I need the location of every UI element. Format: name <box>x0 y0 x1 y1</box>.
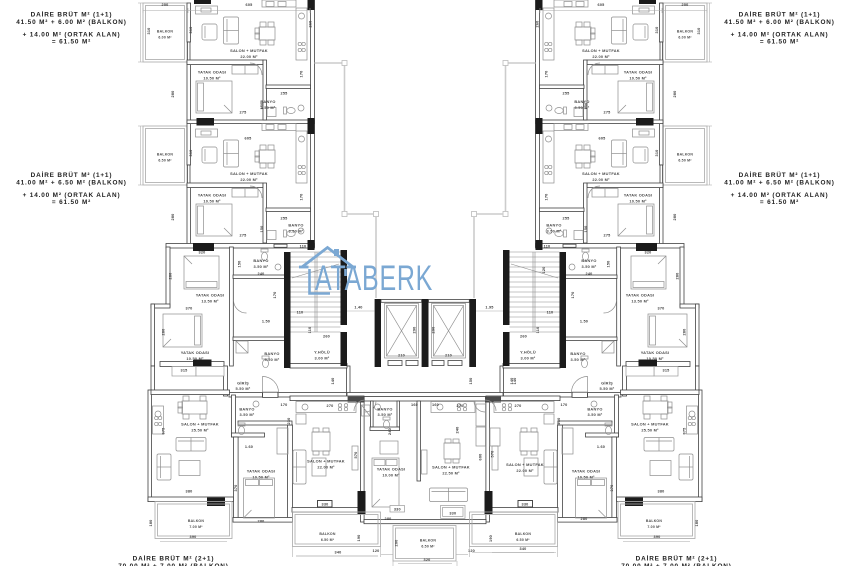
svg-text:230: 230 <box>557 418 561 425</box>
svg-text:5.50 M²: 5.50 M² <box>600 386 615 391</box>
svg-text:170: 170 <box>273 292 277 299</box>
svg-text:240: 240 <box>388 428 392 435</box>
svg-text:= 61.50 M²: = 61.50 M² <box>760 199 799 206</box>
svg-text:340: 340 <box>520 547 527 551</box>
svg-text:240: 240 <box>456 427 460 434</box>
svg-text:SALON + MUTFAK: SALON + MUTFAK <box>230 48 268 53</box>
svg-text:BANYO: BANYO <box>239 407 254 412</box>
svg-text:200: 200 <box>162 3 169 7</box>
svg-text:3.50 M²: 3.50 M² <box>571 357 586 362</box>
svg-text:SALON + MUTFAK: SALON + MUTFAK <box>582 171 620 176</box>
svg-text:DAİRE BRÜT M² (2+1): DAİRE BRÜT M² (2+1) <box>133 554 215 563</box>
svg-text:3.50 M²: 3.50 M² <box>588 412 603 417</box>
svg-text:7.00 M²: 7.00 M² <box>647 525 661 529</box>
svg-text:DAİRE BRÜT M² (2+1): DAİRE BRÜT M² (2+1) <box>636 554 718 563</box>
svg-text:340: 340 <box>335 551 342 555</box>
svg-text:25.50 M²: 25.50 M² <box>191 428 209 433</box>
svg-text:310: 310 <box>655 150 659 157</box>
svg-text:10.50 M²: 10.50 M² <box>577 475 595 480</box>
svg-text:BANYO: BANYO <box>264 351 279 356</box>
svg-text:120: 120 <box>373 549 380 553</box>
svg-text:110: 110 <box>308 327 312 334</box>
svg-text:3.50 M²: 3.50 M² <box>254 264 269 269</box>
svg-text:315: 315 <box>181 369 188 373</box>
svg-text:150: 150 <box>584 103 588 110</box>
svg-text:110: 110 <box>544 245 551 249</box>
svg-text:310: 310 <box>147 28 151 35</box>
svg-text:3.50 M²: 3.50 M² <box>582 264 597 269</box>
svg-text:DAİRE BRÜT M² (1+1): DAİRE BRÜT M² (1+1) <box>739 170 821 179</box>
svg-text:170: 170 <box>571 292 575 299</box>
svg-text:275: 275 <box>240 234 247 238</box>
svg-text:280: 280 <box>673 91 677 98</box>
svg-text:6.50 M²: 6.50 M² <box>321 538 335 542</box>
svg-text:370: 370 <box>234 485 238 492</box>
svg-text:BALKON: BALKON <box>188 519 204 523</box>
svg-text:200: 200 <box>395 540 399 547</box>
svg-text:1.60: 1.60 <box>597 445 605 449</box>
svg-text:160: 160 <box>432 403 439 407</box>
svg-text:SALON + MUTFAK: SALON + MUTFAK <box>506 462 544 467</box>
svg-text:10.00 M²: 10.00 M² <box>382 473 400 478</box>
svg-text:10.50 M²: 10.50 M² <box>203 76 221 81</box>
svg-text:10.50 M²: 10.50 M² <box>646 356 664 361</box>
svg-text:DAİRE BRÜT M² (1+1): DAİRE BRÜT M² (1+1) <box>739 10 821 19</box>
svg-text:BANYO: BANYO <box>377 407 392 412</box>
svg-text:SALON + MUTFAK: SALON + MUTFAK <box>432 465 470 470</box>
svg-text:22.00 M²: 22.00 M² <box>592 54 610 59</box>
svg-text:3.00 M²: 3.00 M² <box>521 356 536 361</box>
svg-text:280: 280 <box>673 214 677 221</box>
svg-text:875: 875 <box>683 428 687 435</box>
svg-text:DAİRE BRÜT M² (1+1): DAİRE BRÜT M² (1+1) <box>31 170 113 179</box>
svg-text:320: 320 <box>199 251 206 255</box>
svg-text:275: 275 <box>604 234 611 238</box>
svg-text:110: 110 <box>300 245 307 249</box>
svg-text:150: 150 <box>260 226 264 233</box>
svg-text:SALON + MUTFAK: SALON + MUTFAK <box>582 48 620 53</box>
svg-text:380: 380 <box>658 490 665 494</box>
svg-text:+ 14.00 M² (ORTAK ALAN): + 14.00 M² (ORTAK ALAN) <box>731 192 829 199</box>
svg-text:3.00 M²: 3.00 M² <box>315 356 330 361</box>
svg-text:3.50 M²: 3.50 M² <box>240 412 255 417</box>
svg-text:BALKON: BALKON <box>420 539 436 543</box>
svg-text:275: 275 <box>604 111 611 115</box>
svg-text:605: 605 <box>246 3 253 7</box>
svg-text:240: 240 <box>586 272 593 276</box>
svg-text:22.00 M²: 22.00 M² <box>516 468 534 473</box>
svg-text:YATAK ODASI: YATAK ODASI <box>247 469 276 474</box>
svg-text:BANYO: BANYO <box>546 223 561 228</box>
svg-text:570: 570 <box>491 451 495 458</box>
svg-text:390: 390 <box>654 535 661 539</box>
svg-text:160: 160 <box>411 403 418 407</box>
svg-text:BANYO: BANYO <box>253 258 268 263</box>
svg-text:310: 310 <box>697 28 701 35</box>
svg-text:330: 330 <box>522 503 529 507</box>
svg-text:290: 290 <box>432 327 436 334</box>
svg-text:150: 150 <box>238 261 242 268</box>
svg-text:190: 190 <box>357 535 361 542</box>
svg-text:280: 280 <box>171 91 175 98</box>
svg-text:ATABERK: ATABERK <box>315 259 433 298</box>
svg-text:BALKON: BALKON <box>677 153 693 157</box>
svg-text:41.50 M² + 6.00 M² (BALKON): 41.50 M² + 6.00 M² (BALKON) <box>724 19 834 26</box>
svg-text:+ 14.00 M² (ORTAK ALAN): + 14.00 M² (ORTAK ALAN) <box>23 32 121 39</box>
svg-text:280: 280 <box>581 517 588 521</box>
svg-text:110: 110 <box>297 311 304 315</box>
svg-text:570: 570 <box>354 452 358 459</box>
svg-text:315: 315 <box>663 369 670 373</box>
svg-text:120: 120 <box>542 267 546 274</box>
svg-text:320: 320 <box>645 251 652 255</box>
svg-text:41.50 M² + 6.00 M² (BALKON): 41.50 M² + 6.00 M² (BALKON) <box>16 19 126 26</box>
svg-text:BANYO: BANYO <box>570 351 585 356</box>
svg-text:22.00 M²: 22.00 M² <box>240 54 258 59</box>
svg-text:13.50 M²: 13.50 M² <box>201 299 219 304</box>
svg-text:SALON + MUTFAK: SALON + MUTFAK <box>230 171 268 176</box>
svg-text:DAİRE BRÜT M² (1+1): DAİRE BRÜT M² (1+1) <box>31 10 113 19</box>
svg-text:370: 370 <box>610 485 614 492</box>
svg-text:Y.HÖLÜ: Y.HÖLÜ <box>520 350 536 355</box>
svg-text:280: 280 <box>258 519 265 523</box>
svg-text:10.50 M²: 10.50 M² <box>203 199 221 204</box>
svg-text:1.95: 1.95 <box>485 306 493 310</box>
svg-text:10.50 M²: 10.50 M² <box>629 199 647 204</box>
svg-text:1.50: 1.50 <box>262 320 270 324</box>
svg-text:280: 280 <box>162 329 166 336</box>
svg-text:41.00 M² + 6.50 M² (BALKON): 41.00 M² + 6.50 M² (BALKON) <box>724 180 834 187</box>
svg-text:605: 605 <box>598 3 605 7</box>
svg-text:270: 270 <box>515 404 522 408</box>
svg-text:6.50 M²: 6.50 M² <box>516 538 530 542</box>
svg-text:SALON + MUTFAK: SALON + MUTFAK <box>181 422 219 427</box>
svg-text:YATAK ODASI: YATAK ODASI <box>377 467 406 472</box>
svg-text:GİRİŞ: GİRİŞ <box>237 381 249 386</box>
svg-text:BALKON: BALKON <box>646 519 662 523</box>
svg-text:3.50 M²: 3.50 M² <box>289 229 304 234</box>
svg-text:190: 190 <box>489 535 493 542</box>
svg-text:170: 170 <box>281 403 288 407</box>
svg-text:150: 150 <box>607 261 611 268</box>
svg-text:270: 270 <box>327 404 334 408</box>
svg-text:6.00 M²: 6.00 M² <box>678 36 692 40</box>
svg-text:YATAK ODASI: YATAK ODASI <box>181 350 210 355</box>
svg-text:330: 330 <box>449 511 456 515</box>
svg-text:605: 605 <box>599 137 606 141</box>
svg-text:875: 875 <box>162 428 166 435</box>
svg-text:170: 170 <box>544 194 548 201</box>
svg-text:150: 150 <box>584 226 588 233</box>
svg-text:41.00 M² + 6.50 M² (BALKON): 41.00 M² + 6.50 M² (BALKON) <box>16 180 126 187</box>
svg-text:= 61.50 M²: = 61.50 M² <box>52 39 91 46</box>
svg-text:10.50 M²: 10.50 M² <box>252 475 270 480</box>
svg-text:1.40: 1.40 <box>354 306 362 310</box>
svg-text:180: 180 <box>695 520 699 527</box>
svg-text:240: 240 <box>258 272 265 276</box>
svg-text:3.50 M²: 3.50 M² <box>547 229 562 234</box>
svg-text:260: 260 <box>520 335 527 339</box>
svg-text:10.50 M²: 10.50 M² <box>186 356 204 361</box>
svg-text:255: 255 <box>281 92 288 96</box>
svg-text:+ 14.00 M² (ORTAK ALAN): + 14.00 M² (ORTAK ALAN) <box>23 192 121 199</box>
svg-text:6.50 M²: 6.50 M² <box>421 545 435 549</box>
svg-text:290: 290 <box>413 327 417 334</box>
svg-text:= 61.50 M²: = 61.50 M² <box>52 199 91 206</box>
svg-text:260: 260 <box>309 21 313 28</box>
svg-text:7.00 M²: 7.00 M² <box>189 525 203 529</box>
svg-text:600: 600 <box>479 454 483 461</box>
svg-text:330: 330 <box>394 508 401 512</box>
svg-text:605: 605 <box>245 137 252 141</box>
svg-text:25.50 M²: 25.50 M² <box>641 428 659 433</box>
svg-text:+ 14.00 M² (ORTAK ALAN): + 14.00 M² (ORTAK ALAN) <box>731 32 829 39</box>
svg-text:390: 390 <box>190 535 197 539</box>
svg-text:BALKON: BALKON <box>319 532 335 536</box>
svg-text:13.50 M²: 13.50 M² <box>631 299 649 304</box>
svg-text:255: 255 <box>281 217 288 221</box>
svg-text:YATAK ODASI: YATAK ODASI <box>641 350 670 355</box>
svg-text:SALON + MUTFAK: SALON + MUTFAK <box>307 459 345 464</box>
svg-text:260: 260 <box>323 335 330 339</box>
svg-text:370: 370 <box>186 307 193 311</box>
svg-text:YATAK ODASI: YATAK ODASI <box>624 193 653 198</box>
svg-text:BANYO: BANYO <box>581 258 596 263</box>
svg-text:150: 150 <box>260 103 264 110</box>
svg-text:310: 310 <box>189 27 193 34</box>
svg-text:22.50 M²: 22.50 M² <box>442 471 460 476</box>
svg-text:210: 210 <box>398 354 405 358</box>
svg-text:310: 310 <box>189 150 193 157</box>
svg-text:170: 170 <box>300 194 304 201</box>
svg-text:BALKON: BALKON <box>157 153 173 157</box>
svg-text:170: 170 <box>544 71 548 78</box>
svg-text:330: 330 <box>322 503 329 507</box>
svg-text:170: 170 <box>300 71 304 78</box>
svg-text:6.50 M²: 6.50 M² <box>158 159 172 163</box>
svg-text:3.50 M²: 3.50 M² <box>378 412 393 417</box>
svg-text:YATAK ODASI: YATAK ODASI <box>624 70 653 75</box>
svg-text:320: 320 <box>424 558 431 562</box>
svg-text:BANYO: BANYO <box>587 407 602 412</box>
svg-text:YATAK ODASI: YATAK ODASI <box>198 70 227 75</box>
svg-text:22.00 M²: 22.00 M² <box>240 177 258 182</box>
svg-text:YATAK ODASI: YATAK ODASI <box>626 293 655 298</box>
svg-text:200: 200 <box>682 3 689 7</box>
svg-text:GİRİŞ: GİRİŞ <box>601 381 613 386</box>
svg-text:280: 280 <box>385 517 392 521</box>
svg-text:140: 140 <box>510 378 514 385</box>
svg-text:5.50 M²: 5.50 M² <box>236 386 251 391</box>
svg-text:= 61.50 M²: = 61.50 M² <box>760 39 799 46</box>
svg-text:SALON + MUTFAK: SALON + MUTFAK <box>631 422 669 427</box>
svg-text:BALKON: BALKON <box>677 30 693 34</box>
svg-text:170: 170 <box>561 403 568 407</box>
svg-text:280: 280 <box>169 273 173 280</box>
svg-text:280: 280 <box>171 214 175 221</box>
svg-text:260: 260 <box>536 21 540 28</box>
svg-text:BALKON: BALKON <box>515 532 531 536</box>
svg-text:YATAK ODASI: YATAK ODASI <box>572 469 601 474</box>
svg-text:Y.HÖLÜ: Y.HÖLÜ <box>314 350 330 355</box>
svg-text:1.50: 1.50 <box>580 320 588 324</box>
svg-text:255: 255 <box>563 92 570 96</box>
svg-text:380: 380 <box>186 490 193 494</box>
svg-text:280: 280 <box>676 273 680 280</box>
svg-text:110: 110 <box>536 327 540 334</box>
svg-text:BANYO: BANYO <box>288 223 303 228</box>
svg-text:22.00 M²: 22.00 M² <box>592 177 610 182</box>
svg-text:6.00 M²: 6.00 M² <box>158 36 172 40</box>
svg-text:280: 280 <box>683 329 687 336</box>
svg-text:310: 310 <box>655 27 659 34</box>
svg-text:22.00 M²: 22.00 M² <box>317 465 335 470</box>
svg-text:6.50 M²: 6.50 M² <box>678 159 692 163</box>
svg-text:110: 110 <box>547 311 554 315</box>
svg-text:210: 210 <box>445 354 452 358</box>
svg-text:230: 230 <box>287 418 291 425</box>
svg-text:150: 150 <box>469 378 473 385</box>
svg-text:BALKON: BALKON <box>157 30 173 34</box>
svg-text:10.50 M²: 10.50 M² <box>629 76 647 81</box>
svg-text:3.50 M²: 3.50 M² <box>265 357 280 362</box>
svg-text:270: 270 <box>457 404 464 408</box>
svg-text:255: 255 <box>563 217 570 221</box>
svg-text:140: 140 <box>331 378 335 385</box>
svg-text:1.60: 1.60 <box>245 445 253 449</box>
svg-text:YATAK ODASI: YATAK ODASI <box>198 193 227 198</box>
svg-text:YATAK ODASI: YATAK ODASI <box>196 293 225 298</box>
svg-text:275: 275 <box>240 111 247 115</box>
svg-text:370: 370 <box>658 307 665 311</box>
svg-text:180: 180 <box>149 520 153 527</box>
